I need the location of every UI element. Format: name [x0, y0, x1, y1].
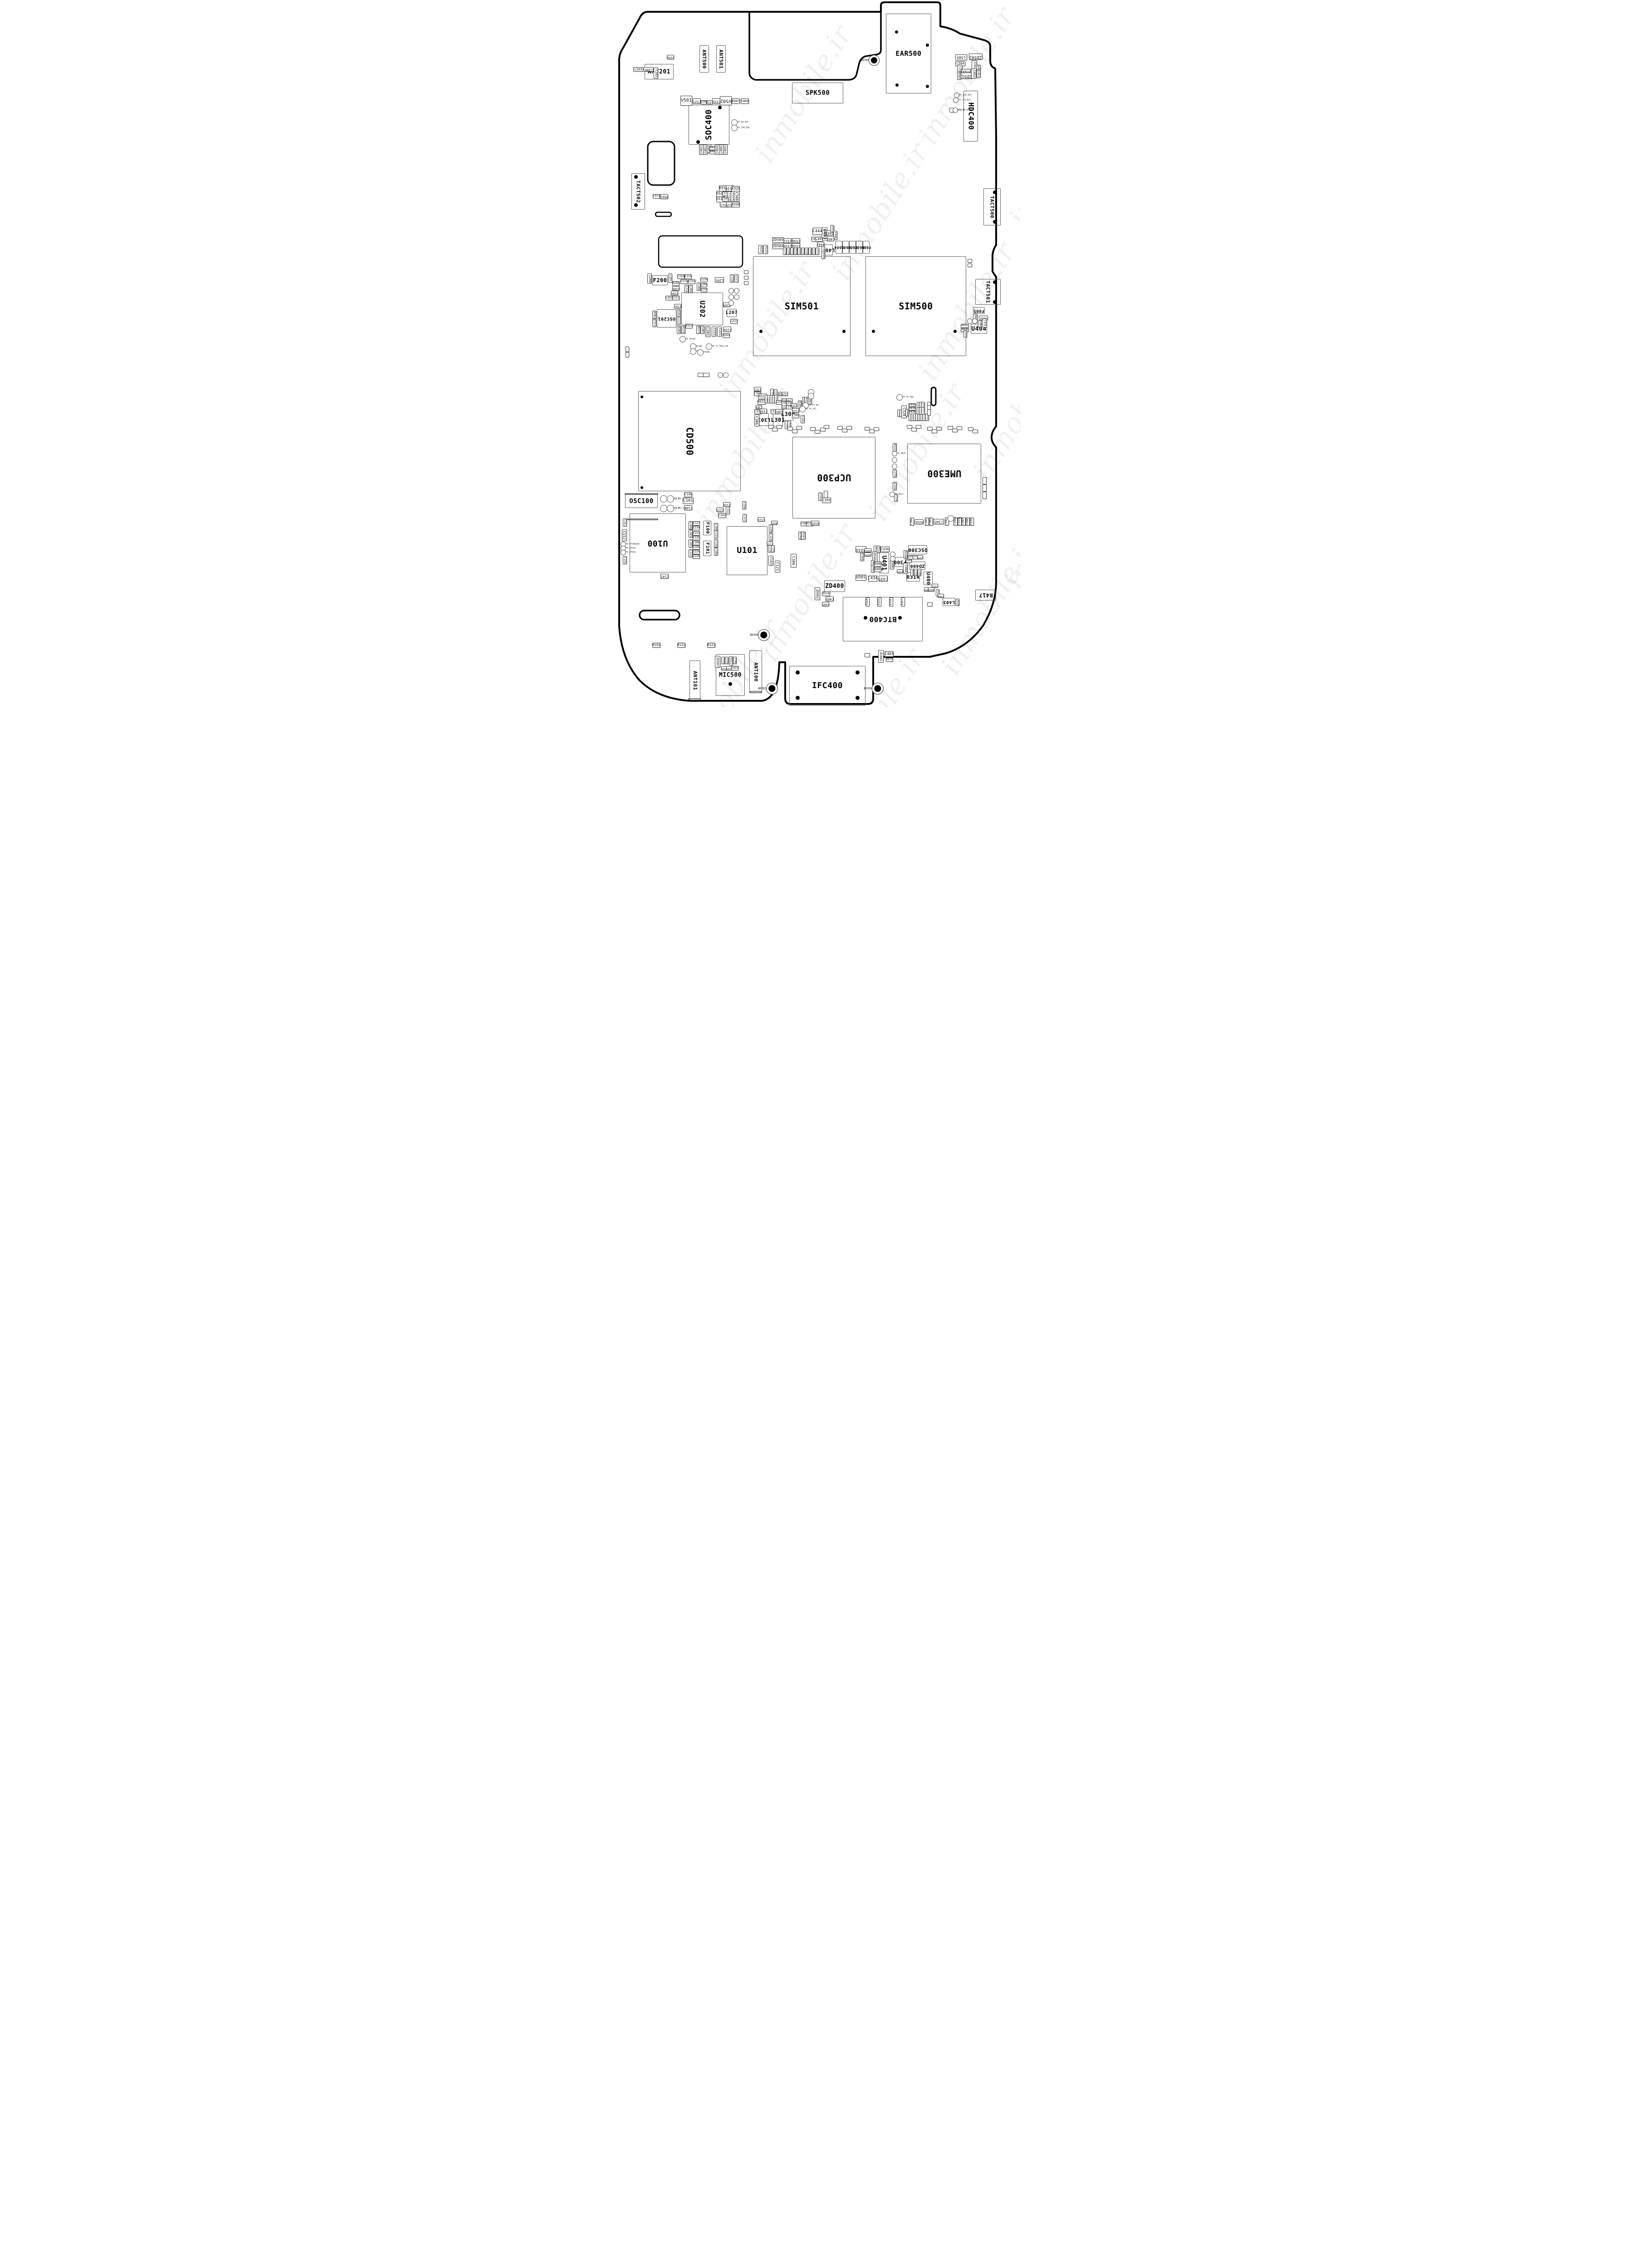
testpoint-tp_lcd_rst: TP_LCD_RST: [953, 98, 958, 103]
component-c508: C508: [734, 191, 739, 202]
designator-label: C221: [718, 328, 721, 336]
designator-label: C380: [792, 556, 795, 565]
component-box: [968, 264, 972, 267]
designator-label: C138: [714, 540, 717, 547]
designator-label: C460: [741, 100, 749, 103]
component-c530: C530: [792, 238, 800, 243]
designator-label: C203: [655, 69, 658, 77]
designator-label: BTC400: [869, 616, 897, 623]
component-c146: C146: [684, 492, 692, 497]
designator-label: U202: [699, 300, 706, 318]
component-c132: C132: [693, 531, 700, 536]
testpoint-label: TP_RFSEN100: [626, 543, 640, 546]
module-osc201: OSC201: [657, 309, 676, 327]
pin1-dot: [895, 83, 899, 87]
component-r358: R358: [904, 550, 908, 558]
designator-label: C208: [697, 283, 700, 290]
component-r324: R324: [763, 245, 768, 254]
designator-label: L505: [957, 55, 965, 59]
designator-label: C384: [966, 518, 969, 525]
designator-label: TACT500: [990, 196, 995, 218]
designator-label: C223: [730, 320, 738, 323]
component-c318: C318: [791, 403, 797, 407]
designator-label: CD500: [685, 427, 694, 455]
module-f600: F600: [863, 241, 870, 254]
designator-label: C379: [893, 470, 896, 477]
testpoint: [734, 294, 739, 300]
component-c200: C200: [647, 274, 652, 283]
component-c534: C534: [725, 657, 728, 664]
component-c455: C455: [963, 330, 967, 337]
pin1-dot: [953, 330, 957, 333]
module-u400: U400: [924, 572, 933, 585]
component-zd512: ZD512: [959, 73, 973, 79]
component-c213: C213: [677, 317, 681, 325]
module-soc400: SOC400: [689, 105, 729, 145]
module-tact501: TACT501: [975, 279, 1001, 305]
designator-label: ZD401: [873, 568, 882, 571]
component-c515: C515: [812, 248, 816, 255]
screw-hole-pad: [768, 685, 775, 692]
component-c139: C139: [693, 526, 700, 530]
testpoint-label: TP_LCD_RST: [958, 99, 971, 102]
designator-label: TACT502: [636, 180, 641, 203]
component-l200: L200: [644, 67, 654, 72]
designator-label: C215: [681, 280, 687, 283]
component-l103: L103: [689, 529, 693, 538]
component-r102: R102: [652, 643, 660, 648]
component-c518: C518: [805, 248, 808, 255]
testpoint-tp_fg_sda: TP_FG_SDA: [896, 394, 903, 401]
designator-label: C125: [717, 508, 723, 511]
pin1-dot: [634, 175, 638, 179]
component-c345: C345: [933, 519, 944, 524]
component-r354: R354: [865, 597, 870, 606]
designator-label: R335: [812, 522, 819, 525]
component-c488: C488: [906, 559, 912, 563]
designator-label: C222: [713, 328, 716, 336]
designator-label: C374: [917, 556, 923, 558]
designator-label: R324: [764, 246, 767, 253]
designator-label: C515: [813, 249, 815, 254]
designator-label: C324: [782, 392, 788, 395]
designator-label: C127: [743, 515, 746, 521]
component-c204: C204: [671, 291, 678, 295]
component-c123: C123: [758, 517, 765, 522]
designator-label: C147: [661, 575, 669, 578]
component-r508: R508: [732, 202, 740, 207]
designator-label: L406: [720, 146, 723, 154]
designator-label: MIC500: [719, 672, 742, 678]
component-box: [874, 427, 879, 431]
component-zd501: ZD501: [815, 587, 820, 600]
module-l301: L301: [773, 413, 783, 426]
testpoint-label: TP_JT_VREG_EN: [712, 346, 728, 348]
component-c125: C125: [716, 508, 724, 512]
testpoint-label: TP_GPIO2: [686, 338, 696, 341]
testpoint-label: TP_RFSDA: [626, 552, 636, 554]
testpoint-tp_trx_q_n: TP_TRX_Q_N: [660, 505, 667, 512]
component-c343: C343: [801, 415, 805, 423]
component-l508: L508: [733, 657, 737, 664]
module-osc100: OSC100: [625, 494, 658, 508]
designator-label: R501: [660, 195, 668, 198]
component-zd504: ZD504: [772, 244, 784, 249]
designator-label: R101: [772, 522, 777, 524]
designator-label: C521: [798, 249, 801, 254]
designator-label: C136: [693, 555, 699, 558]
designator-label: R334: [865, 553, 870, 556]
designator-label: C488: [906, 560, 911, 562]
designator-label: L511: [784, 239, 792, 242]
designator-label: C520: [787, 249, 790, 254]
designator-label: C343: [801, 416, 804, 422]
testpoint-tp_jt_vreg_en: TP_JT_VREG_EN: [706, 343, 712, 350]
designator-label: R121: [708, 644, 715, 647]
component-c454: C454: [978, 320, 982, 327]
component-r200: R200: [672, 281, 680, 286]
component-c532: C532: [731, 666, 738, 670]
designator-label: L403: [943, 600, 955, 604]
component-l405: L405: [816, 237, 823, 242]
designator-label: ANT501: [719, 49, 724, 69]
designator-label: C382: [962, 518, 965, 525]
pin1-dot: [728, 682, 732, 686]
component-c162: C162: [718, 513, 726, 518]
module-btc400: BTC400: [843, 597, 923, 641]
module-ifc400: IFC400: [789, 666, 865, 706]
designator-label: ZD507: [716, 657, 719, 666]
designator-label: L106: [693, 542, 699, 544]
component-c221: C221: [717, 327, 722, 337]
component-c203: C203: [654, 68, 658, 78]
designator-label: F605: [973, 308, 984, 313]
testpoint: [890, 556, 895, 562]
component-l509: L509: [701, 100, 707, 104]
component-r509: R509: [808, 248, 812, 255]
component-l201: L201: [668, 274, 672, 283]
component-v502: V502: [720, 96, 732, 105]
component-c153: C153: [623, 556, 627, 564]
designator-label: C213: [677, 318, 680, 324]
designator-label: C219: [685, 275, 691, 278]
designator-label: C151: [726, 507, 729, 513]
component-c374: C374: [917, 555, 923, 559]
component-c202: C202: [674, 304, 681, 308]
testpoint: [808, 393, 814, 399]
board-slot-or-bracket: [648, 142, 675, 185]
designator-label: C214: [685, 286, 688, 292]
module-cd500: CD500: [638, 391, 741, 491]
designator-label: C121: [776, 562, 779, 571]
designator-label: R347: [802, 533, 805, 539]
testpoint: [728, 294, 734, 300]
component-r337: R337: [921, 407, 925, 415]
testpoint-label: TP_FG_SDA: [903, 396, 914, 399]
designator-label: V502: [720, 98, 731, 103]
designator-label: C201: [706, 327, 709, 336]
designator-label: C409: [938, 595, 944, 597]
component-c379: C379: [893, 469, 897, 478]
component-c406: C406: [890, 560, 894, 569]
module-spk500: SPK500: [792, 83, 843, 103]
designator-label: L510: [784, 244, 792, 247]
designator-label: ZD400: [825, 583, 844, 589]
component-c301: C301: [775, 409, 782, 414]
designator-label: L112: [689, 550, 692, 557]
component-c218: C218: [730, 274, 734, 283]
module-u101: U101: [727, 526, 768, 575]
testpoint-tp_fg_scl: TP_FG_SCL: [799, 406, 806, 412]
component-r439: R439: [909, 407, 916, 411]
screw-hole-b0302: B0302: [869, 55, 880, 66]
designator-label: C509: [722, 198, 728, 200]
component-c151: C151: [726, 506, 730, 514]
designator-label: C153: [623, 557, 626, 563]
designator-label: R325: [759, 246, 762, 253]
component-c208: C208: [697, 283, 701, 291]
component-c519: C519: [783, 248, 787, 255]
designator-label: C110: [724, 503, 730, 506]
component-c133: C133: [714, 530, 718, 538]
component-c528: C528: [792, 243, 800, 248]
module-tact502: TACT502: [631, 173, 645, 210]
component-r435: R435: [961, 324, 969, 328]
designator-label: UME300: [927, 469, 961, 478]
testpoint-label: TP_TRX_I_N: [674, 508, 686, 510]
pin1-dot: [993, 300, 997, 304]
component-box: [824, 425, 829, 429]
testpoint-tp_lcd_vsync: TP_LCD_VSYNC: [953, 108, 958, 113]
pin1-dot: [898, 616, 902, 620]
component-c375: C375: [897, 569, 903, 573]
designator-label: R337: [922, 408, 924, 414]
module-f101: F101: [703, 541, 711, 556]
module-f605: F605: [973, 307, 985, 313]
component-c211: C211: [672, 296, 680, 300]
component-r442: R442: [817, 242, 824, 247]
designator-label: C406: [890, 562, 893, 568]
designator-label: R410: [929, 588, 934, 591]
designator-label: C123: [758, 518, 764, 521]
screw-hole-pad: [760, 631, 767, 638]
designator-label: C375: [897, 570, 903, 572]
component-c409: C409: [938, 594, 944, 598]
component-box: [824, 491, 828, 498]
component-zd502: ZD502: [969, 54, 983, 60]
designator-label: SPK500: [806, 90, 830, 96]
testpoint: [723, 372, 728, 378]
component-box: [777, 425, 782, 429]
testpoint: [734, 288, 739, 293]
designator-label: C135: [693, 537, 699, 539]
component-r203: R203: [723, 333, 730, 338]
module-zd400: ZD400: [824, 580, 845, 592]
designator-label: R219: [682, 327, 684, 333]
testpoint-label: TP_CAM_DX0: [738, 127, 750, 129]
designator-label: C315: [792, 409, 799, 412]
pin1-dot: [759, 330, 763, 333]
designator-label: R502: [958, 73, 960, 79]
component-c217: C217: [734, 274, 738, 283]
component-c451: C451: [977, 70, 981, 78]
designator-label: C220: [701, 279, 707, 281]
component-l505: L505: [955, 54, 967, 60]
component-c201: C201: [705, 326, 710, 337]
designator-label: IFC400: [812, 682, 843, 690]
designator-label: R202: [677, 310, 680, 317]
component-box: [815, 430, 820, 434]
designator-label: C162: [719, 514, 726, 517]
component-r510: R510: [794, 248, 797, 255]
component-l510: L510: [783, 243, 792, 248]
component-c380: C380: [791, 554, 797, 567]
designator-label: C152: [622, 531, 626, 539]
designator-label: C408: [904, 565, 907, 572]
designator-label: R518: [823, 592, 829, 595]
component-r205: R205: [677, 326, 681, 334]
component-r522: R522: [729, 656, 733, 665]
designator-label: C519: [784, 249, 786, 254]
designator-label: C325: [819, 494, 821, 500]
designator-label: ZD406: [910, 563, 925, 568]
component-c430: C430: [914, 569, 918, 576]
designator-label: L402: [827, 237, 835, 240]
designator-label: C131: [767, 543, 772, 545]
designator-label: C133: [714, 531, 717, 538]
designator-label: C436: [881, 548, 889, 551]
component-box: [865, 653, 870, 657]
pin1-dot: [993, 280, 997, 284]
component-c127: C127: [743, 514, 747, 522]
component-c210: C210: [701, 288, 707, 292]
component-l511: L511: [783, 238, 792, 243]
screw-hole-label: B0300: [750, 634, 758, 637]
testpoint-label: TP_2M_RST: [738, 122, 748, 124]
component-box: [792, 430, 797, 433]
designator-label: R326: [731, 187, 740, 191]
component-c214: C214: [684, 285, 689, 293]
designator-label: C465: [724, 146, 727, 154]
designator-label: ZD402: [880, 651, 883, 661]
pin1-dot: [993, 191, 997, 194]
designator-label: C212: [653, 320, 655, 326]
module-ucp300: UCP300: [792, 437, 875, 518]
component-r502: R502: [957, 72, 961, 80]
pin1-dot: [796, 696, 800, 700]
component-c216: C216: [688, 279, 695, 284]
component-c137: C137: [693, 521, 700, 526]
component-c326: C326: [760, 409, 767, 414]
component-r325: R325: [758, 245, 763, 254]
designator-label: R205: [677, 327, 680, 333]
designator-label: R419: [886, 658, 893, 661]
component-c215: C215: [680, 279, 688, 284]
designator-label: C383: [929, 518, 932, 525]
designator-label: C134: [693, 551, 699, 553]
testpoint-tp_trx_i_n: TP_TRX_I_N: [667, 505, 674, 512]
component-c517: C517: [816, 248, 819, 255]
designator-label: C306: [755, 416, 758, 425]
component-c509: C509: [722, 197, 728, 201]
designator-label: L203: [635, 68, 642, 71]
module-ant501: ANT501: [716, 45, 726, 73]
designator-label: R315: [911, 570, 914, 575]
component-l202: L202: [665, 296, 673, 300]
designator-label: C529: [713, 100, 720, 103]
pin1-dot: [640, 396, 643, 398]
component-box: [744, 270, 748, 274]
designator-label: R102: [653, 644, 660, 647]
designator-label: R322: [893, 444, 896, 450]
testpoint-tp_rfsda: TP_RFSDA: [621, 550, 626, 555]
designator-label: C455: [964, 331, 967, 337]
testpoint-label: TP_DQ39: [897, 453, 906, 455]
designator-label: L103: [689, 530, 692, 537]
designator-label: ZD504: [772, 244, 783, 248]
testpoint-label: TP208: [704, 352, 710, 354]
designator-label: R439: [909, 407, 915, 410]
component-c521: C521: [797, 248, 801, 255]
pin1-dot: [796, 670, 800, 675]
pin1-dot: [718, 106, 722, 109]
component-box: [744, 276, 748, 279]
designator-label: ANT100: [753, 662, 758, 682]
component-c408: C408: [903, 563, 908, 574]
board-slot-or-bracket: [655, 212, 671, 216]
designator-label: C163: [769, 557, 772, 565]
module-hdc400: HDC400: [963, 91, 978, 142]
designator-label: C139: [693, 527, 699, 529]
designator-label: C137: [693, 522, 699, 525]
component-l107: L107: [689, 539, 693, 547]
component-c205: C205: [667, 55, 674, 59]
component-box: [983, 477, 987, 484]
designator-label: C345: [934, 520, 943, 523]
testpoint-tp204: TP204: [690, 348, 696, 355]
component-c304: C304: [910, 518, 914, 526]
designator-label: R217: [697, 327, 699, 333]
designator-label: C444: [812, 230, 822, 234]
component-r217: R217: [696, 326, 700, 334]
component-u501: U501: [856, 575, 866, 581]
component-box: [936, 427, 942, 430]
component-c435: C435: [879, 576, 888, 582]
designator-label: C508: [735, 192, 738, 200]
designator-label: C537: [653, 195, 660, 198]
designator-label: C533: [722, 658, 724, 663]
designator-label: L104: [714, 524, 717, 530]
designator-label: C368: [861, 554, 863, 560]
designator-label: L105: [689, 522, 692, 528]
component-zd405: ZD405: [874, 562, 881, 567]
module-l303: L303: [759, 413, 769, 426]
designator-label: R354: [866, 599, 869, 605]
component-c334: C334: [970, 518, 974, 526]
designator-label: R508: [732, 203, 740, 206]
designator-label: C516: [802, 249, 804, 254]
component-c152: C152: [622, 529, 627, 541]
testpoint: [972, 318, 978, 324]
designator-label: C338: [893, 483, 896, 489]
designator-label: L301: [771, 417, 785, 423]
designator-label: C454: [979, 321, 981, 327]
testpoint-tp_cam_dx0: TP_CAM_DX0: [731, 125, 738, 131]
designator-label: C485: [822, 603, 829, 606]
component-c222: C222: [712, 327, 716, 337]
component-c161: C161: [623, 518, 627, 527]
designator-label: C120: [772, 546, 774, 552]
